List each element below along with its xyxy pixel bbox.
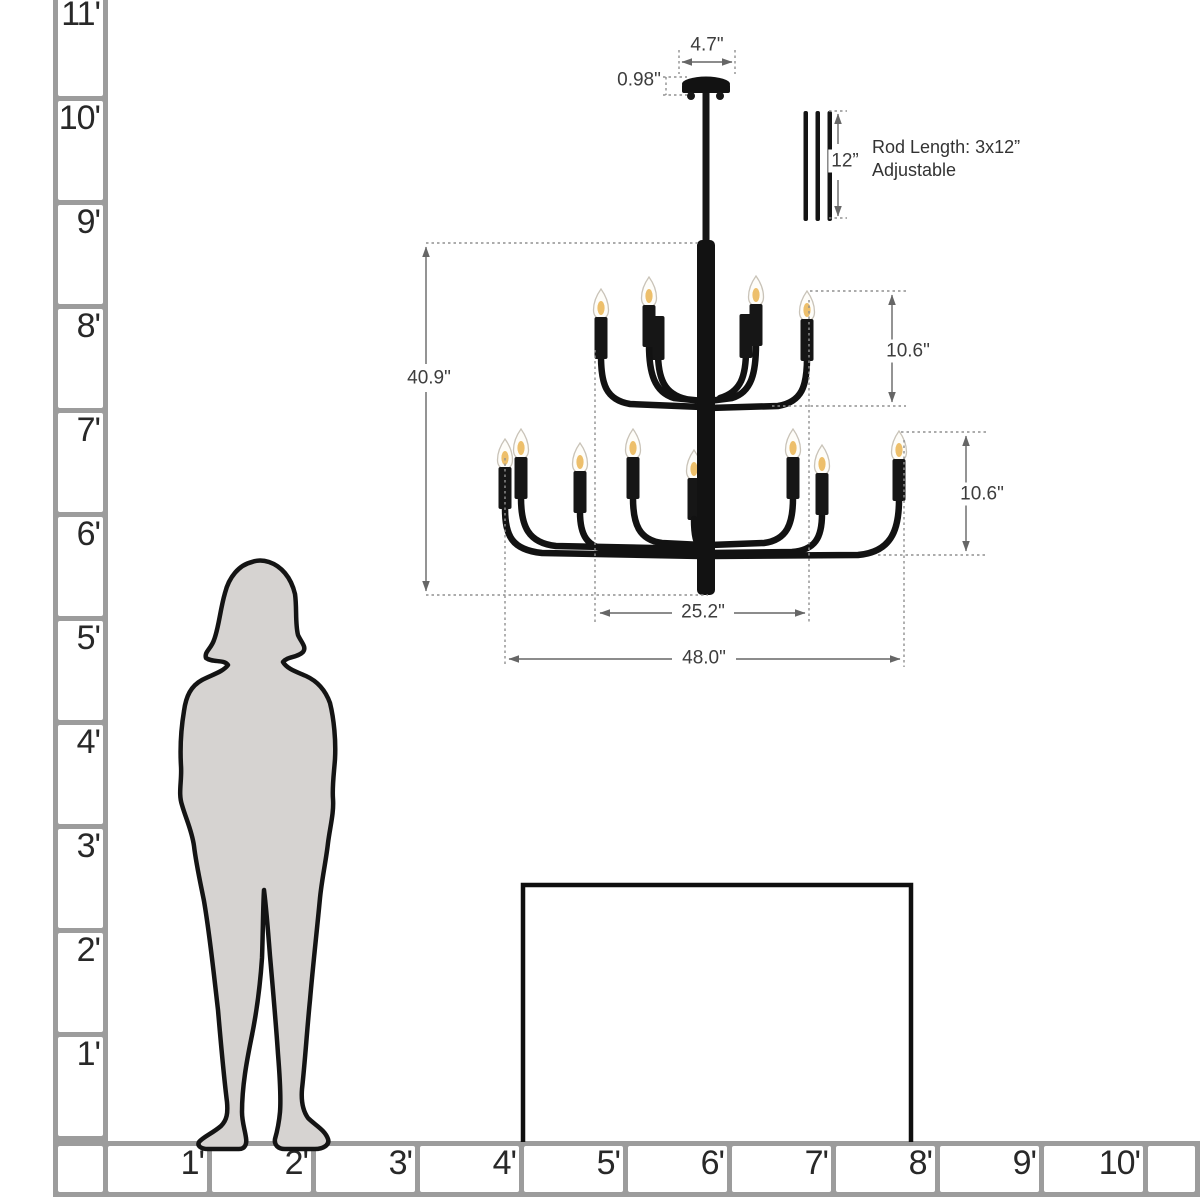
candle-light — [642, 277, 657, 347]
candle-light — [626, 429, 641, 499]
dim-lower-tier-width: 48.0" — [679, 647, 729, 670]
rod-note: Rod Length: 3x12” Adjustable — [872, 136, 1020, 182]
person-silhouette — [180, 561, 335, 1150]
candle-light — [514, 429, 529, 499]
dim-overall-height: 40.9" — [404, 367, 454, 390]
candle-sleeve — [627, 457, 640, 499]
candle-light — [594, 289, 609, 359]
hanging-rod — [703, 93, 710, 243]
dim-upper-tier-width: 25.2" — [678, 601, 728, 624]
column-collar — [698, 398, 714, 413]
candle-sleeve — [801, 319, 814, 361]
candle-sleeve — [750, 304, 763, 346]
candle-sleeve — [574, 471, 587, 513]
column-collar — [698, 544, 714, 559]
dim-canopy-height: 0.98" — [617, 71, 661, 90]
candle-sleeve — [515, 457, 528, 499]
chandelier-arm — [710, 498, 793, 545]
candle-sleeve — [787, 457, 800, 499]
candle-light — [786, 429, 801, 499]
dim-rod-length: 12” — [828, 150, 861, 173]
rod-note-line1: Rod Length: 3x12” — [872, 136, 1020, 159]
candle-sleeve — [816, 473, 829, 515]
candle-light — [800, 291, 815, 361]
dim-lower-tier-height: 10.6" — [957, 483, 1007, 506]
candle-light — [749, 276, 764, 346]
candle-light — [573, 443, 588, 513]
dim-canopy-width: 4.7" — [690, 36, 723, 55]
product-dimension-diagram: 11' 10' 9' 8' 7' 6' 5' 4' 3' 2' 1' 1' 2'… — [0, 0, 1200, 1200]
candle-sleeve — [643, 305, 656, 347]
candle-sleeve — [595, 317, 608, 359]
table-outline — [523, 885, 911, 1142]
candle-light — [815, 445, 830, 515]
dim-upper-tier-height: 10.6" — [883, 340, 933, 363]
rod-note-line2: Adjustable — [872, 159, 1020, 182]
